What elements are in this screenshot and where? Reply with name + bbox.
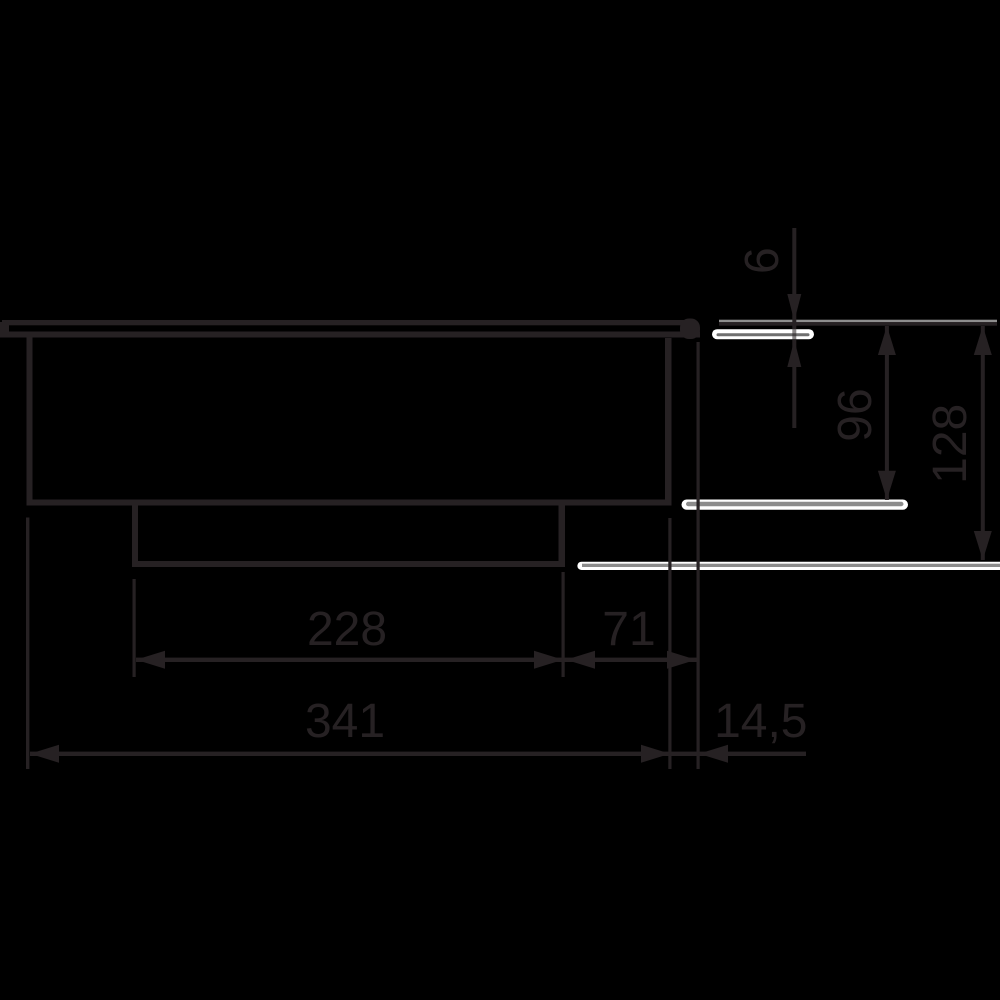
svg-text:228: 228 <box>307 603 387 656</box>
svg-text:14,5: 14,5 <box>714 695 807 748</box>
svg-text:71: 71 <box>602 603 655 656</box>
svg-text:96: 96 <box>829 388 882 441</box>
svg-text:128: 128 <box>924 404 977 484</box>
svg-text:341: 341 <box>305 695 385 748</box>
svg-text:6: 6 <box>736 247 789 274</box>
